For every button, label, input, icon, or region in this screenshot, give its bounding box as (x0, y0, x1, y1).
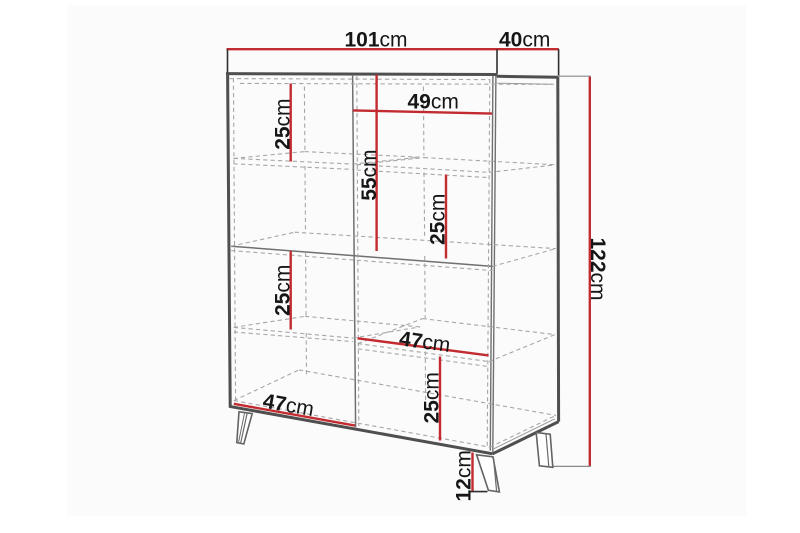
svg-text:55cm: 55cm (358, 149, 381, 200)
svg-text:25cm: 25cm (271, 265, 294, 316)
svg-text:25cm: 25cm (271, 98, 294, 149)
svg-text:101cm: 101cm (345, 29, 408, 52)
svg-text:25cm: 25cm (426, 194, 449, 245)
svg-text:40cm: 40cm (499, 29, 550, 52)
svg-text:122cm: 122cm (586, 238, 609, 301)
svg-text:12cm: 12cm (453, 450, 476, 501)
svg-text:49cm: 49cm (408, 91, 459, 114)
svg-text:25cm: 25cm (420, 372, 443, 423)
